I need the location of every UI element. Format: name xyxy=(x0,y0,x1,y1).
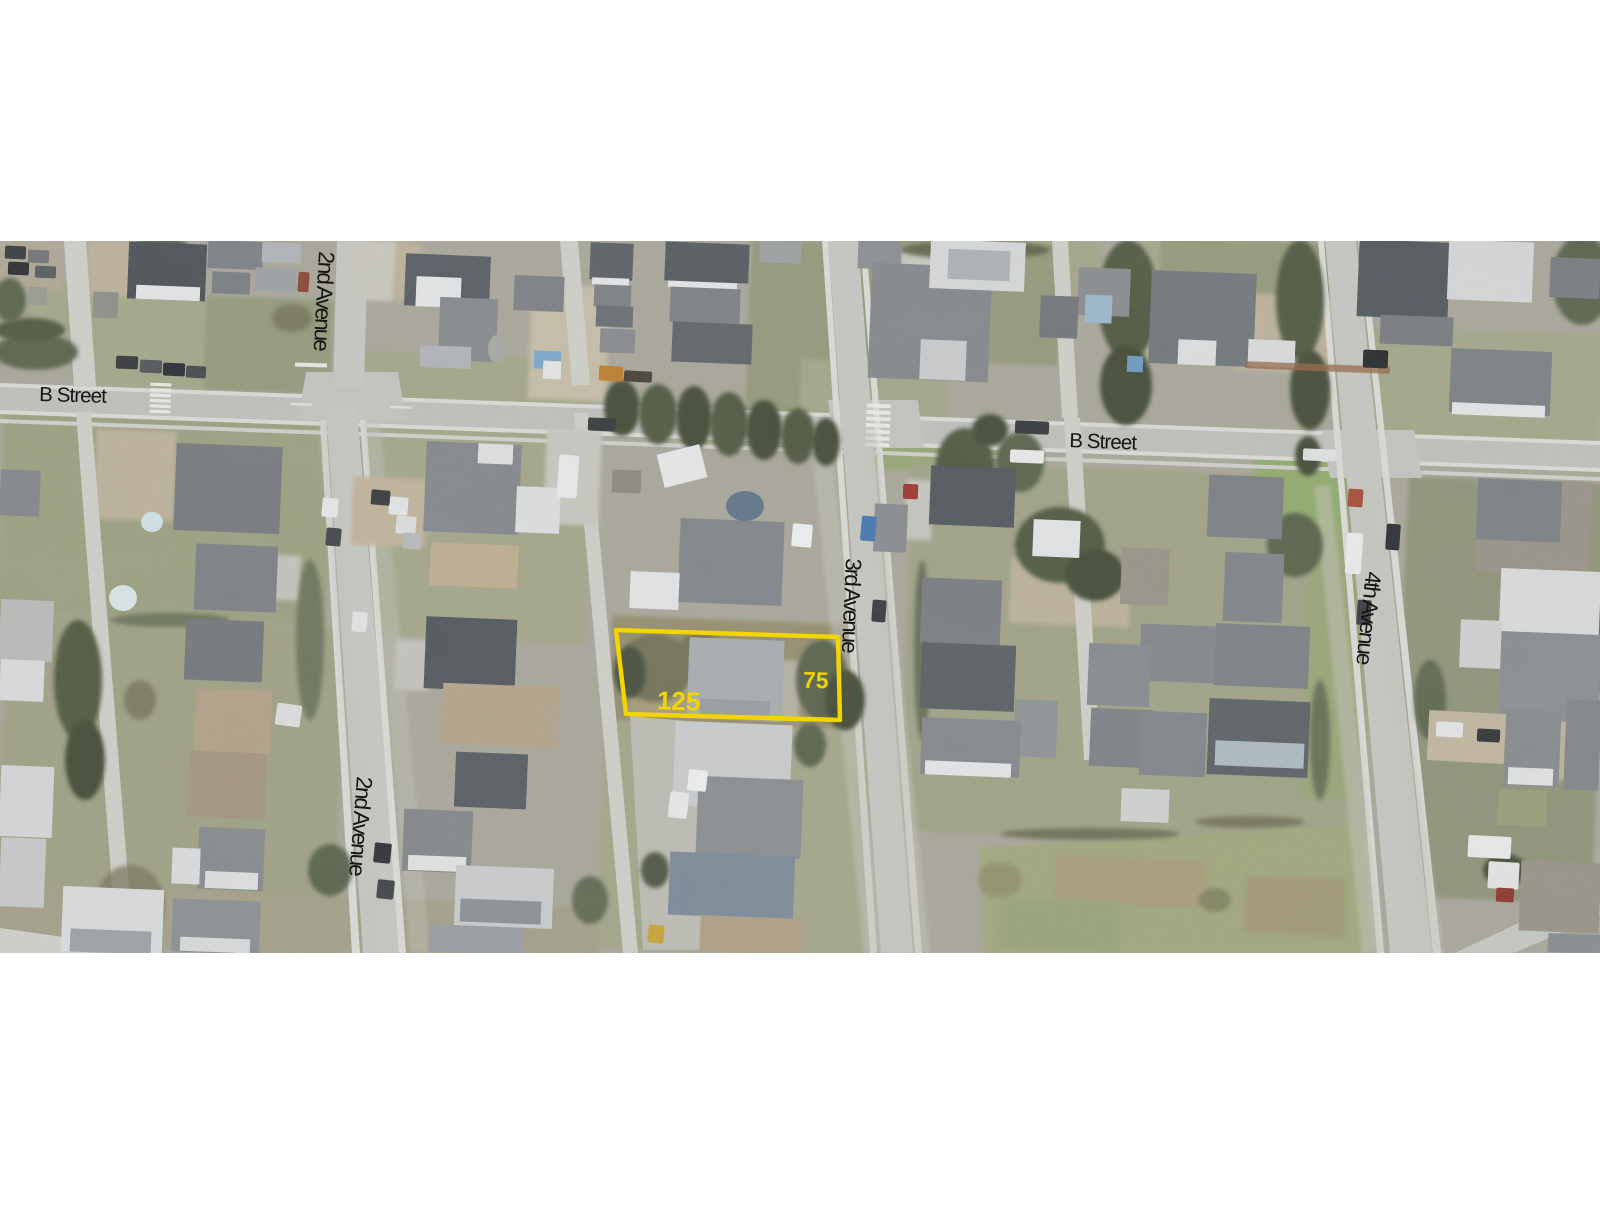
svg-text:2nd Avenue: 2nd Avenue xyxy=(309,251,339,352)
svg-text:125: 125 xyxy=(657,685,701,716)
svg-text:B Street: B Street xyxy=(39,383,108,408)
svg-text:75: 75 xyxy=(803,667,830,694)
svg-text:3rd Avenue: 3rd Avenue xyxy=(837,558,866,654)
svg-text:B Street: B Street xyxy=(1069,429,1138,454)
